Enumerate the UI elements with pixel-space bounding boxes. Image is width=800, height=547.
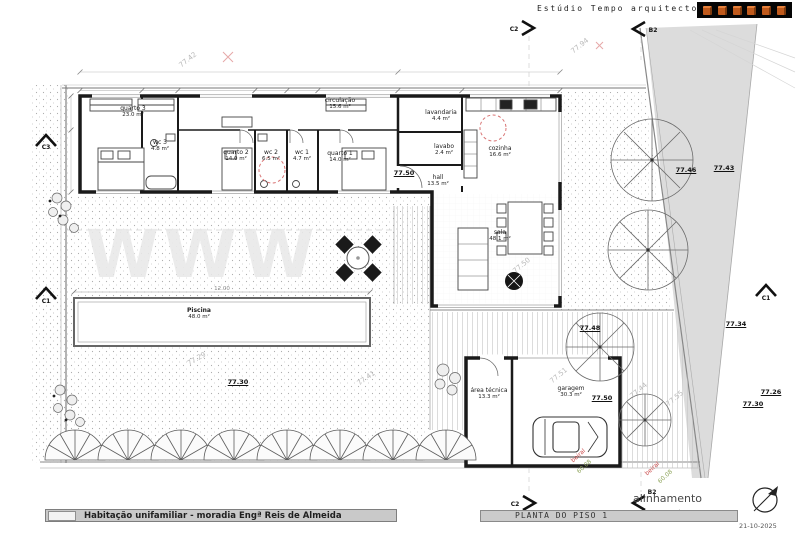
- room-label-wc2: wc 26.5 m²: [262, 149, 280, 163]
- project-title-bar: Habitação unifamiliar - moradia Engª Rei…: [45, 509, 397, 522]
- room-label-hall: hall13.5 m²: [427, 174, 449, 188]
- watermark: WWW: [86, 216, 319, 293]
- room-label-wc1: wc 14.7 m²: [293, 149, 311, 163]
- room-area: 48.0 m²: [187, 314, 211, 321]
- room-area: 4.7 m²: [293, 156, 311, 163]
- drawing-title-bar: PLANTA DO PISO 1: [480, 510, 738, 522]
- title-bar-cell: [48, 511, 76, 521]
- alinhamento-label: alinhamento: [633, 492, 702, 505]
- studio-logo: [697, 2, 792, 18]
- room-label-circulacao: circulação15.6 m²: [325, 97, 355, 111]
- room-area: 23.0 m²: [120, 112, 146, 119]
- survey-crosses: [223, 42, 603, 62]
- room-area: 15.6 m²: [325, 104, 355, 111]
- room-area: 4.4 m²: [425, 116, 457, 123]
- logo-cube-icon: [747, 6, 756, 15]
- room-label-wc3: wc 34.8 m²: [151, 139, 169, 153]
- room-area: 2.4 m²: [434, 150, 454, 157]
- marker-b2-top: B2: [649, 27, 658, 34]
- room-label-sala: sala48.1 m²: [489, 229, 511, 243]
- date-label: 21-10-2025: [739, 522, 777, 530]
- room-label-quarto3: quarto 323.0 m²: [120, 105, 146, 119]
- logo-cube-icon: [718, 6, 727, 15]
- room-label-lavabo: lavabo2.4 m²: [434, 143, 454, 157]
- floor-plan-sheet: { "studio": "Estúdio Tempo arquitectos",…: [0, 0, 800, 547]
- marker-c2-bottom: C2: [511, 501, 520, 508]
- level-sidewalk-1: 77.46: [676, 166, 697, 174]
- marker-c3-left: C3: [42, 144, 51, 151]
- room-area: 14.0 m²: [327, 157, 353, 164]
- logo-cube-icon: [733, 6, 742, 15]
- marker-c1-right: C1: [762, 295, 771, 302]
- room-label-lavandaria: lavandaria4.4 m²: [425, 109, 457, 123]
- room-area: 13.5 m²: [427, 181, 449, 188]
- garage: [466, 355, 620, 467]
- room-label-cozinha: cozinha16.6 m²: [488, 145, 511, 159]
- studio-name: Estúdio Tempo arquitectos: [537, 4, 705, 13]
- room-area: 4.8 m²: [151, 146, 169, 153]
- pool: [72, 290, 373, 347]
- north-arrow-icon: [753, 486, 778, 512]
- level-sidewalk-2: 77.43: [714, 164, 735, 172]
- level-hall: 77.50: [394, 169, 415, 177]
- project-title: Habitação unifamiliar - moradia Engª Rei…: [84, 511, 342, 521]
- room-label-quarto2: quarto 214.0 m²: [223, 149, 249, 163]
- marker-c1-left: C1: [42, 298, 51, 305]
- level-sidewalk-4: 77.30: [743, 400, 764, 408]
- logo-cube-icon: [703, 6, 712, 15]
- level-garden: 77.30: [228, 378, 249, 386]
- room-area: 14.0 m²: [223, 156, 249, 163]
- logo-cube-icon: [777, 6, 786, 15]
- room-area: 13.3 m²: [470, 394, 507, 401]
- pool-width-dim: 12.00: [214, 286, 230, 292]
- logo-cube-icon: [762, 6, 771, 15]
- level-sidewalk-3: 77.34: [726, 320, 747, 328]
- room-label-area-tecnica: área técnica13.3 m²: [470, 387, 507, 401]
- room-area: 30.3 m²: [558, 392, 585, 399]
- level-sidewalk-5: 77.26: [761, 388, 782, 396]
- room-area: 6.5 m²: [262, 156, 280, 163]
- room-label-piscina: Piscina48.0 m²: [187, 307, 211, 321]
- level-driveway: 77.48: [580, 324, 601, 332]
- car: [533, 417, 607, 457]
- room-label-quarto1: quarto 114.0 m²: [327, 150, 353, 164]
- marker-c2-top: C2: [510, 26, 519, 33]
- level-garagem: 77.50: [592, 394, 613, 402]
- room-label-garagem: garagem30.3 m²: [558, 385, 585, 399]
- room-area: 16.6 m²: [488, 152, 511, 159]
- room-area: 48.1 m²: [489, 236, 511, 243]
